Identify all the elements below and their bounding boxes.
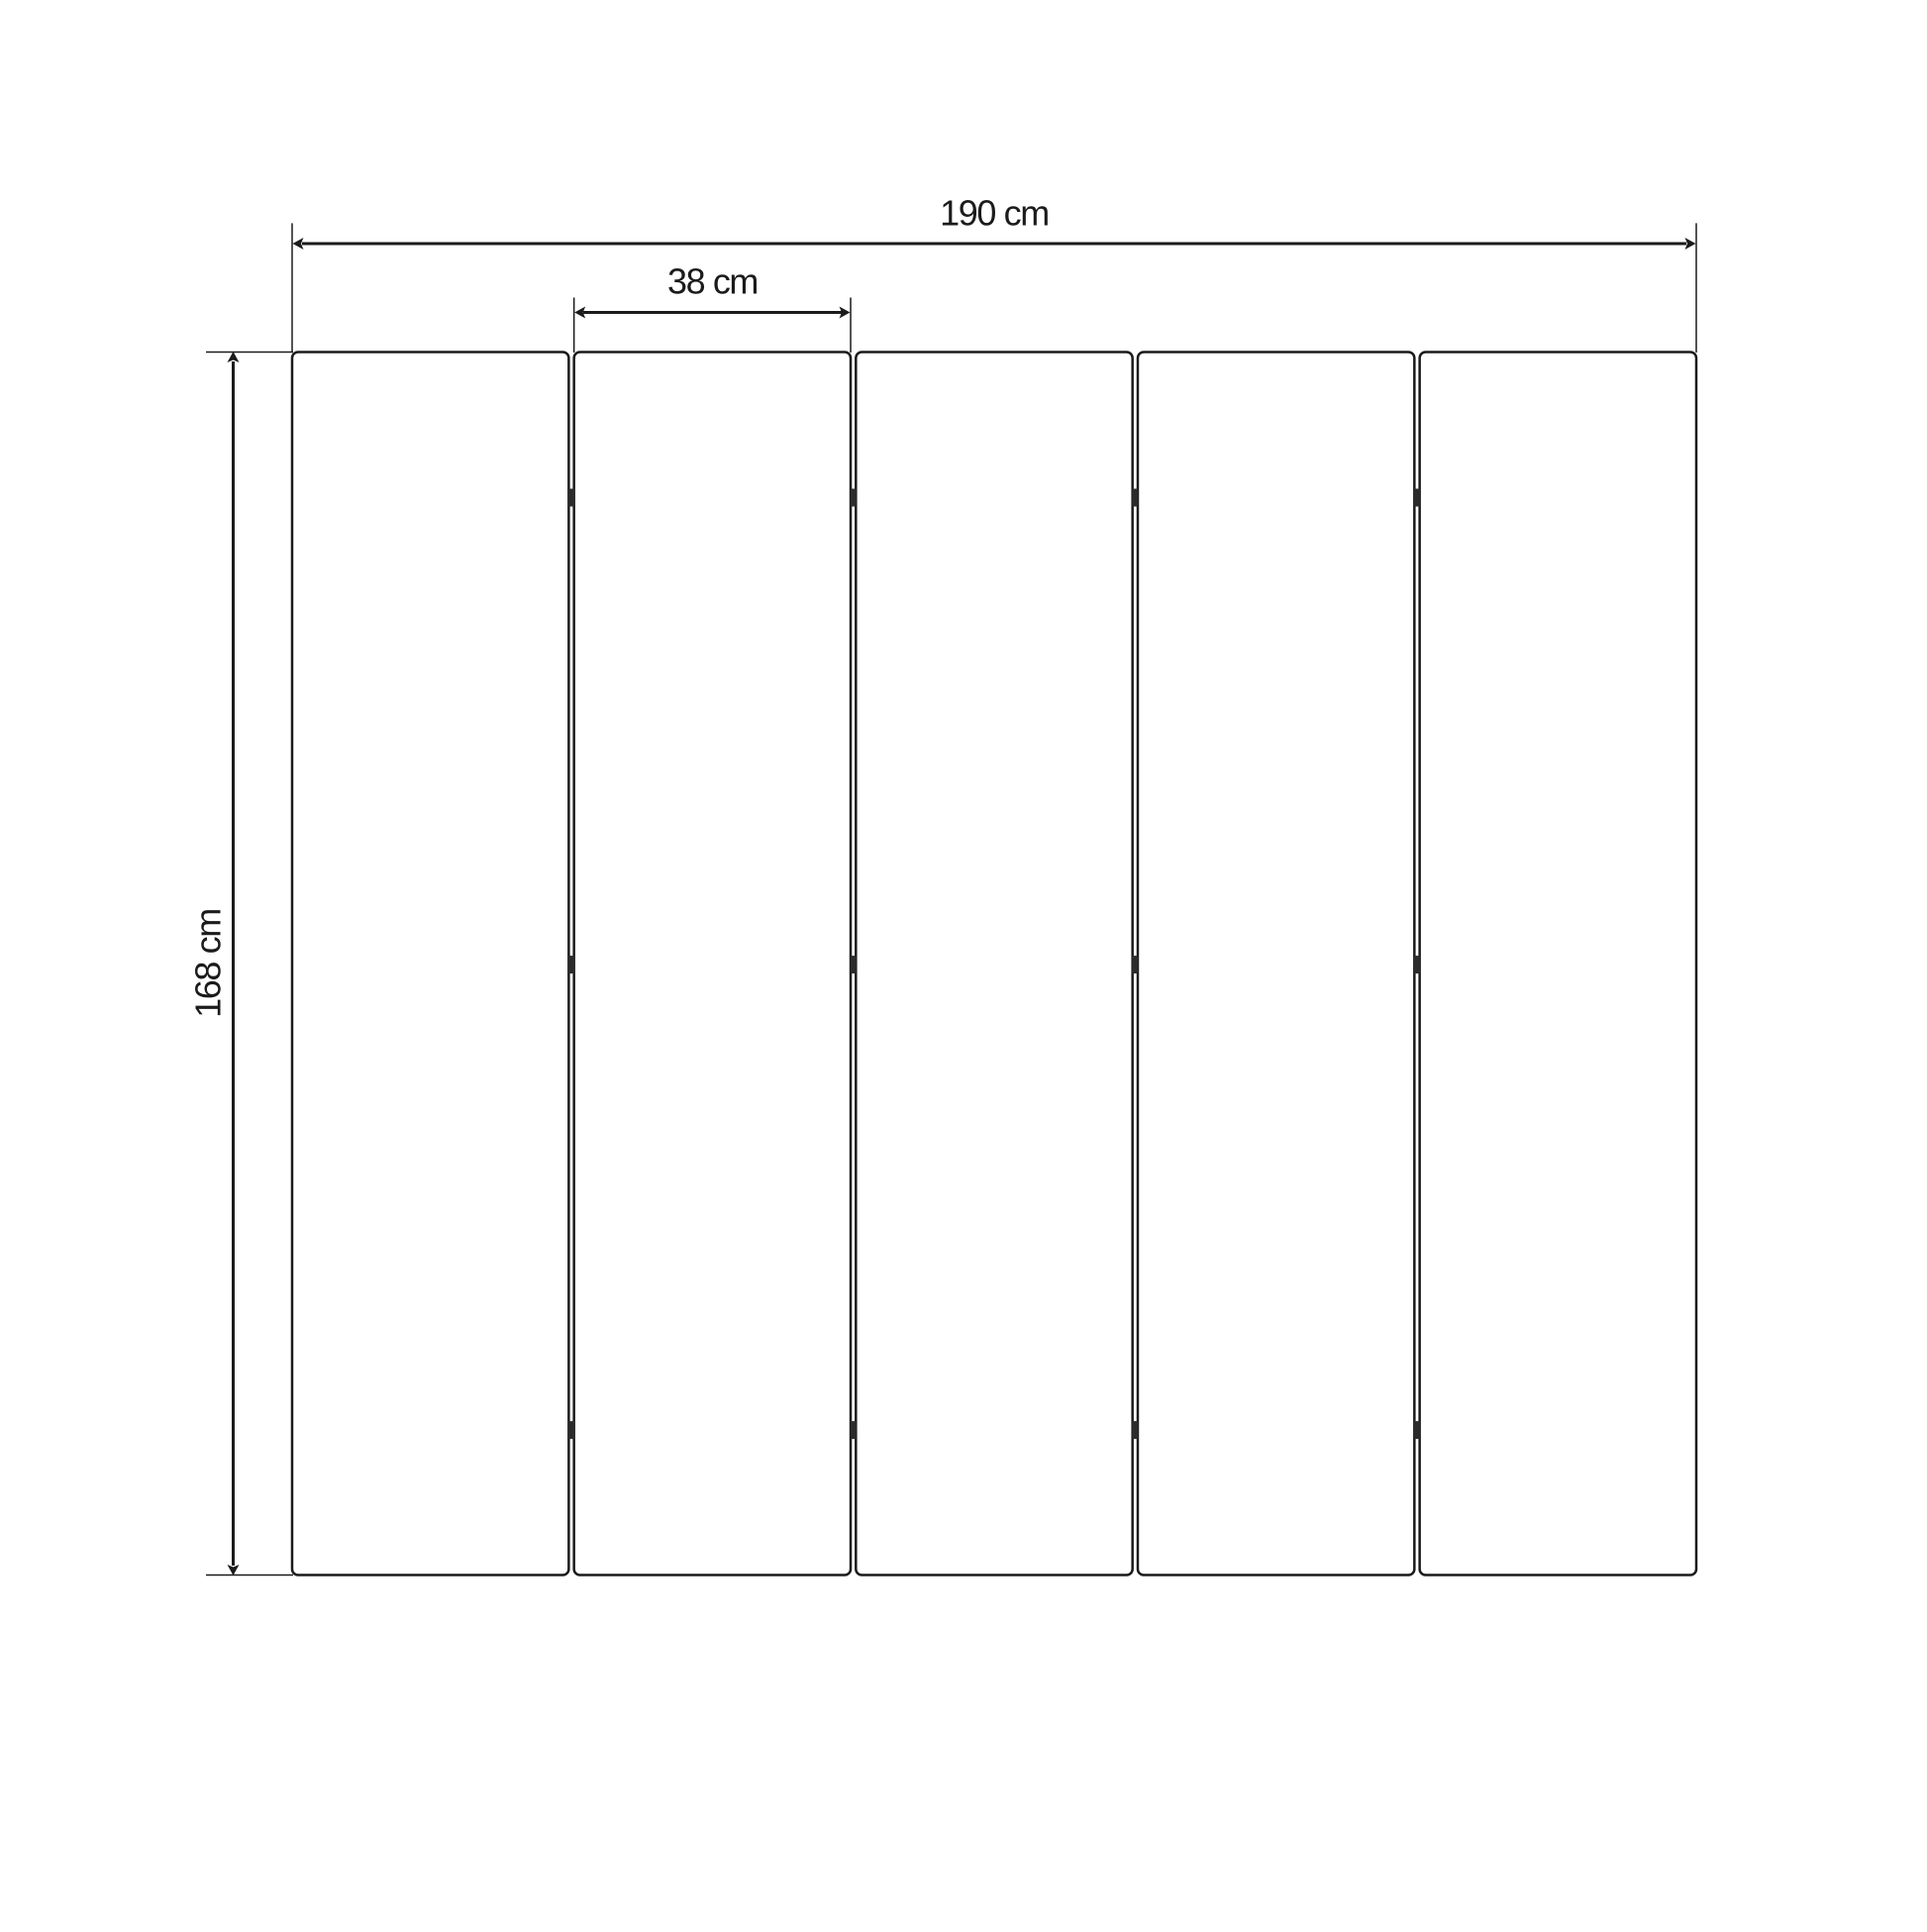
svg-text:190 cm: 190 cm xyxy=(940,193,1049,234)
svg-text:38 cm: 38 cm xyxy=(667,261,758,302)
svg-text:168 cm: 168 cm xyxy=(188,909,229,1018)
